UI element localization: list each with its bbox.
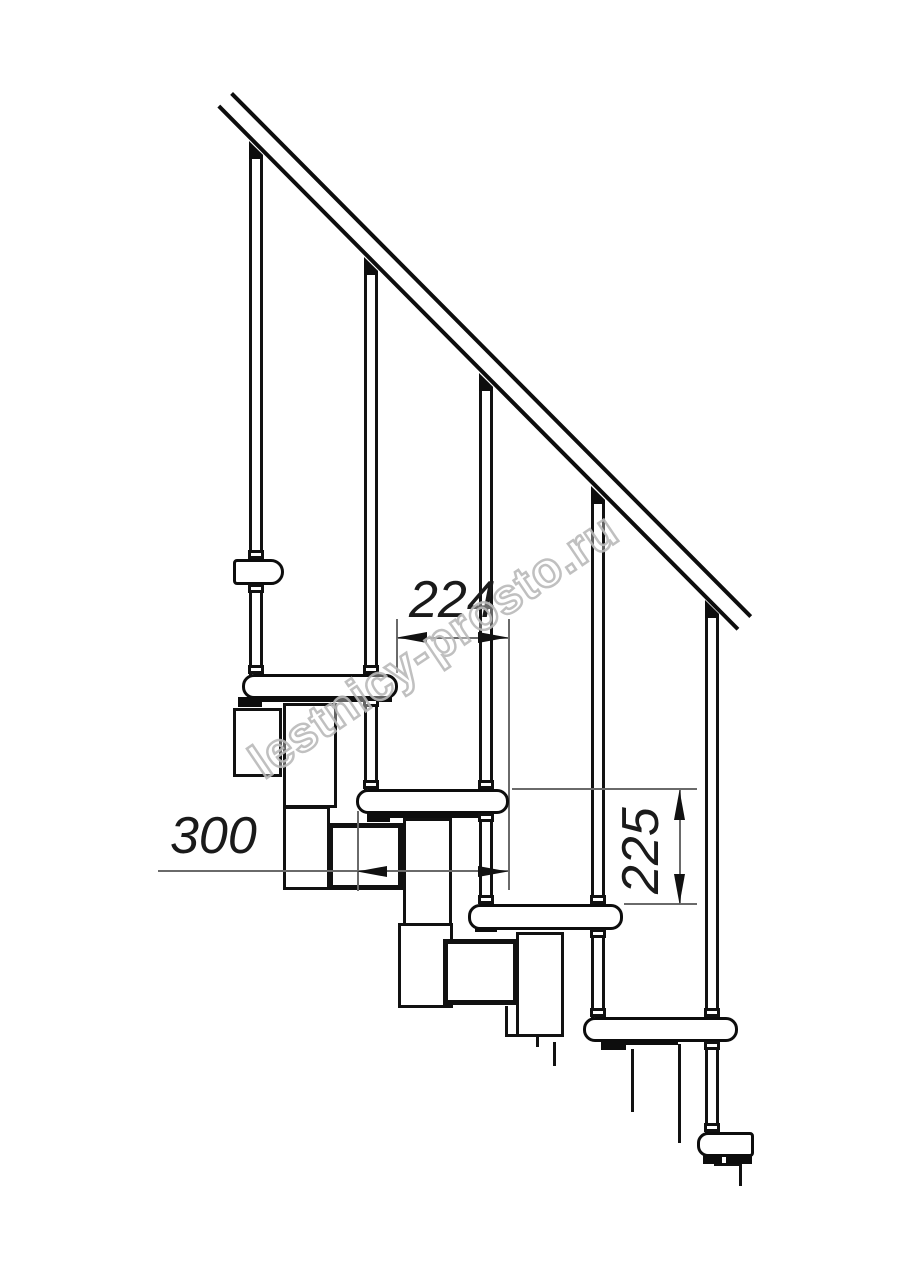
rod-collar <box>248 665 264 674</box>
watermark-text: lestnicy-prosto.ru <box>239 502 628 790</box>
rod-collar <box>478 813 494 822</box>
arrow-300-right <box>478 866 508 877</box>
spine-step-line <box>553 1042 556 1066</box>
rod-collar <box>704 1008 720 1017</box>
arrow-225-up <box>674 790 685 820</box>
ext-line-300-left <box>357 811 359 891</box>
dim-label-225: 225 <box>611 807 671 894</box>
rod-collar <box>590 895 606 904</box>
spine-square-module4 <box>443 939 518 1005</box>
tread-4 <box>468 904 623 930</box>
ext-line-225-bottom <box>624 903 697 905</box>
spine-column-under-tread3 <box>403 818 452 937</box>
tread-end-view-top <box>233 559 284 585</box>
baluster-rod-5 <box>705 616 719 1134</box>
tread-5 <box>583 1017 738 1042</box>
spine-lower-column-module2 <box>283 806 330 890</box>
dim-line-300 <box>158 870 508 872</box>
spine-step-line <box>505 1034 519 1037</box>
tread-end-view-bottom <box>697 1132 754 1157</box>
baluster-rod-1 <box>249 156 263 675</box>
spine-step-line <box>505 1006 508 1037</box>
spine-step-line <box>678 1044 681 1143</box>
ext-line-225-top <box>512 788 697 790</box>
tread-3 <box>356 789 509 814</box>
rod-collar <box>590 1008 606 1017</box>
spine-column-under-tread4 <box>516 932 564 1037</box>
ext-line-shared-right <box>508 619 510 890</box>
spine-square-module3 <box>328 823 403 890</box>
spine-step-line <box>739 1163 742 1186</box>
rod-collar <box>248 550 264 559</box>
dim-label-300: 300 <box>170 806 257 866</box>
rod-collar <box>704 1041 720 1050</box>
rod-collar <box>478 780 494 789</box>
rod-collar <box>704 1123 720 1132</box>
rod-collar <box>590 929 606 938</box>
spine-step-line <box>536 1037 539 1047</box>
rod-collar <box>478 895 494 904</box>
staircase-drawing: 224 300 225 lestnicy-prosto.ru <box>0 0 914 1280</box>
rod-collar <box>363 780 379 789</box>
arrow-225-down <box>674 874 685 904</box>
rod-collar <box>248 584 264 593</box>
spine-step-line <box>631 1049 634 1112</box>
baluster-rod-4 <box>591 501 605 1019</box>
